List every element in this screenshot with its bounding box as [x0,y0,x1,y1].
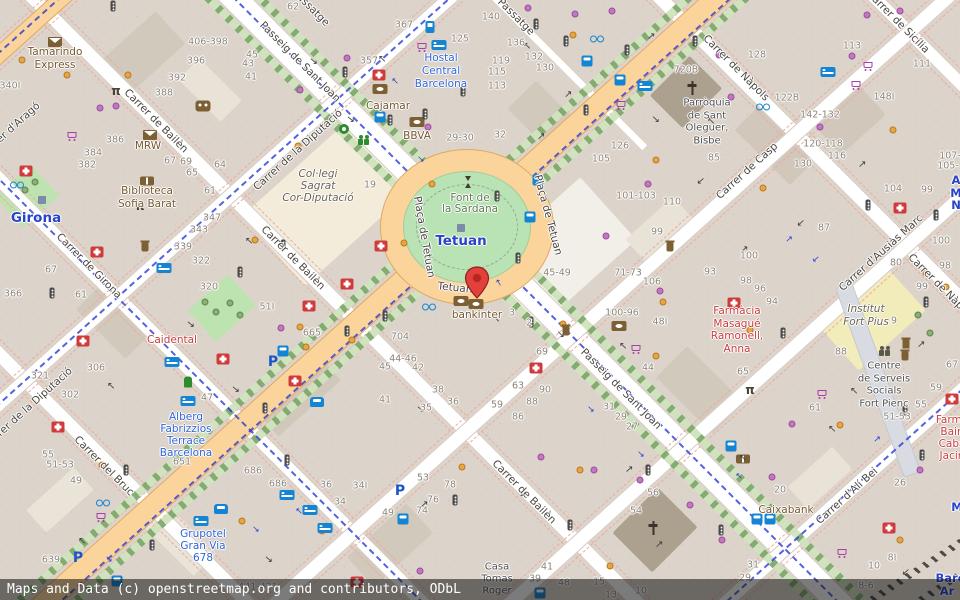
poi-dot [760,185,767,192]
cart-icon [863,61,874,71]
attribution-bar: Maps and Data (c) openstreetmap.org and … [0,579,960,600]
shop-dot [113,103,120,110]
tl-icon [781,328,786,339]
tree-icon [32,179,39,186]
tree-icon [22,187,29,194]
poi-dot [401,240,408,247]
bike-icon [422,302,436,311]
shop-dot [278,325,285,332]
map-canvas[interactable]: πππPPP →→→→→→→→→→→→→→→→→→→→→→→→→→→→→→→→→… [0,0,960,600]
poi-dot [349,337,356,344]
taxi-icon [214,504,228,514]
shop-dot [864,12,871,19]
cart-icon [631,344,642,354]
book-icon [140,177,154,186]
tl-icon [388,115,393,126]
p-icon: P [73,551,83,565]
pharmacy-icon [303,301,316,312]
bank-icon [373,84,388,94]
charge-icon [426,21,435,33]
poi-dot [897,537,904,544]
bed-icon [194,516,209,526]
bed-icon [432,40,447,50]
tl-icon [903,405,908,416]
poi-dot [923,270,930,277]
bus-icon [765,514,776,525]
tl-icon [534,19,539,30]
pharmacy-icon [20,166,33,177]
picnic-icon: π [111,85,121,97]
cart-icon [417,42,428,52]
tree-icon [227,300,234,307]
shop-dot [425,124,432,131]
pharmacy-icon [894,203,907,214]
shop-dot [719,537,726,544]
poi-dot [99,462,106,469]
people-icon [358,135,370,145]
shop-dot [297,87,304,94]
bed-icon [157,263,172,273]
poi-dot [653,353,660,360]
runner-icon [184,377,192,388]
poi-dot [943,284,950,291]
pharmacy-icon [52,422,65,433]
map-marker-pin[interactable] [464,266,490,303]
shop-dot [572,11,579,18]
tl-icon [564,36,569,47]
shop-dot [817,124,824,131]
poi-dot [890,127,897,134]
bus-icon [398,514,409,525]
poi-dot [429,181,436,188]
bed-icon [821,67,836,77]
pharmacy-icon [341,279,354,290]
cart-icon [817,389,828,399]
poi-dot [459,464,466,471]
pharmacy-icon [217,354,230,365]
shop-dot [687,502,694,509]
poi-dot [19,57,26,64]
bed-icon [165,357,180,367]
poi-dot [64,72,71,79]
bus-icon [726,441,737,452]
pharmacy-icon [289,376,302,387]
mail-icon [143,130,157,140]
shop-dot [609,8,616,15]
poi-dot [303,344,310,351]
p-icon: P [268,355,278,369]
shop-dot [728,94,735,101]
pharmacy-icon [883,523,896,534]
metroentr-icon [38,196,46,204]
bike-icon [96,498,110,507]
tl-icon [453,495,458,506]
bike-icon [590,34,604,43]
tl-icon [150,540,155,551]
poi-dot [607,563,614,570]
tl-icon [423,109,428,120]
tl-icon [693,36,698,47]
poi-dot [239,518,246,525]
fountain-icon [464,176,472,188]
bus-icon [582,56,593,67]
tl-icon [124,465,129,476]
mail-icon [48,37,62,47]
tl-icon [934,210,939,221]
pharmacy-icon [91,247,104,258]
cart-icon [96,512,107,522]
trash-icon [142,243,149,252]
bed-icon [181,396,196,406]
tl-icon [568,520,573,531]
shop-dot [917,467,924,474]
p-icon: P [395,484,405,498]
tl-icon [920,450,925,461]
cross-icon [647,521,660,535]
pharmacy-icon [373,70,386,81]
bed-icon [280,490,295,500]
tl-icon [646,465,651,476]
cart-icon [616,100,627,110]
tree-icon [927,330,934,337]
trash-icon [667,243,674,252]
tree-icon [202,299,209,306]
pharmacy-icon [77,336,90,347]
tl-icon [343,67,348,78]
shop-dot [525,5,532,12]
poi-dot [747,327,754,334]
poi-dot [295,143,302,150]
tl-icon [281,240,286,251]
bed-icon [318,523,333,533]
shop-dot [849,53,856,60]
shop-dot [897,8,904,15]
tl-icon [495,191,500,202]
bus-icon [375,112,386,123]
shop-dot [538,454,545,461]
poi-dot [297,324,304,331]
cart-icon [837,548,848,558]
bus-icon [752,514,763,525]
cross-icon [686,81,699,95]
masks-icon [196,101,211,112]
pharmacy-icon [530,363,543,374]
bus-icon [615,75,626,86]
tl-icon [516,253,521,264]
tl-icon [584,105,589,116]
wc-icon [879,346,891,356]
bike-icon [756,102,770,111]
shop-dot [645,181,652,188]
tl-icon [285,455,290,466]
pharmacy-icon [375,241,388,252]
bed-icon [638,81,653,91]
picnic-icon: π [135,200,145,212]
tree-icon [213,309,220,316]
picnic-icon: π [745,384,755,396]
shop-dot [769,474,776,481]
pharmacy-icon [728,298,741,309]
tl-icon [719,525,724,536]
tl-icon [345,326,350,337]
shop-dot [417,568,424,575]
shop-dot [657,288,664,295]
tl-icon [625,45,630,56]
shop-dot [603,233,610,240]
poi-dot [577,467,584,474]
attribution-text: Maps and Data (c) openstreetmap.org and … [7,582,461,597]
drink-icon [903,340,910,349]
shop-dot [344,55,351,62]
bus-icon [525,212,536,223]
poi-dot [653,157,660,164]
shop-dot [789,421,796,428]
shop-dot [591,467,598,474]
tl-icon [461,86,466,97]
tl-icon [238,267,243,278]
bus-icon [278,346,289,357]
taxi-icon [310,397,324,407]
shop-dot [716,52,723,59]
metroentr-icon [457,224,465,232]
tl-icon [924,297,929,308]
recycle-icon [339,124,349,134]
cart-icon [851,80,862,90]
cart-icon [67,131,78,141]
tree-icon [237,312,244,319]
tl-icon [529,317,534,328]
poi-dot [125,72,132,79]
bank-icon [612,321,627,331]
tl-icon [383,311,388,322]
tl-icon [866,200,871,211]
poi-dot [660,299,667,306]
tl-icon [50,288,55,299]
tree-icon [915,312,922,319]
tl-icon [111,1,116,12]
trash-icon [902,352,909,361]
pharmacy-icon [946,394,959,405]
tl-icon [263,403,268,414]
poi-dot [570,32,577,39]
shop-dot [637,477,644,484]
bus-icon [533,175,544,186]
shop-dot [97,105,104,112]
